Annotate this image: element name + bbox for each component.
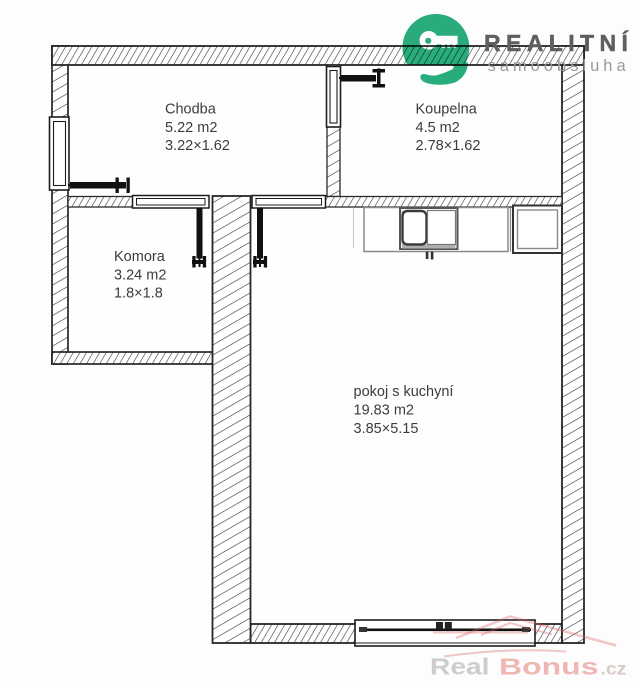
svg-text:Komora: Komora bbox=[114, 249, 166, 265]
svg-text:REALITNÍ: REALITNÍ bbox=[484, 29, 633, 56]
svg-text:Chodba: Chodba bbox=[165, 102, 217, 118]
svg-text:2.78×1.62: 2.78×1.62 bbox=[416, 138, 481, 154]
svg-text:3.85×5.15: 3.85×5.15 bbox=[354, 421, 419, 437]
svg-text:3.24 m2: 3.24 m2 bbox=[114, 268, 166, 284]
svg-text:Koupelna: Koupelna bbox=[416, 102, 478, 118]
svg-text:pokoj s kuchyní: pokoj s kuchyní bbox=[354, 384, 454, 400]
svg-text:Bonus: Bonus bbox=[499, 654, 599, 680]
svg-text:samoobsluha: samoobsluha bbox=[488, 57, 630, 75]
svg-text:1.8×1.8: 1.8×1.8 bbox=[114, 286, 163, 302]
svg-text:5.22 m2: 5.22 m2 bbox=[165, 120, 217, 136]
svg-text:Real: Real bbox=[430, 654, 490, 680]
svg-text:.cz: .cz bbox=[601, 659, 627, 679]
svg-text:3.22×1.62: 3.22×1.62 bbox=[165, 138, 230, 154]
svg-text:4.5 m2: 4.5 m2 bbox=[416, 120, 460, 136]
svg-text:19.83 m2: 19.83 m2 bbox=[354, 403, 414, 419]
